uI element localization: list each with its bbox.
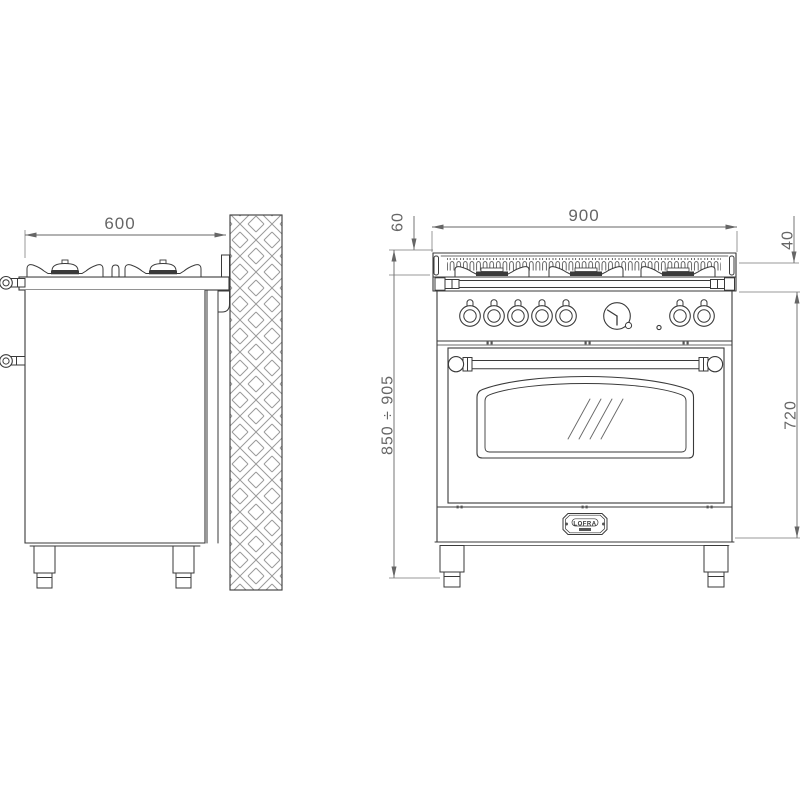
dimension-label: 850 ÷ 905 bbox=[380, 375, 397, 455]
range-installation-diagram: LOFRA 600 bbox=[0, 0, 800, 800]
rail-end-cap-right bbox=[711, 278, 735, 290]
front-view: LOFRA bbox=[433, 253, 736, 587]
rail-end-cap-left bbox=[435, 278, 459, 290]
side-worktop bbox=[19, 277, 229, 290]
control-knob bbox=[508, 300, 529, 327]
towel-rail bbox=[433, 277, 736, 291]
side-body bbox=[25, 290, 205, 543]
dimension-worktop-edge: 40 bbox=[739, 216, 799, 263]
side-view bbox=[0, 215, 282, 590]
control-knob bbox=[694, 300, 715, 327]
control-knob bbox=[670, 300, 691, 327]
handle-ball bbox=[448, 357, 463, 372]
dimension-front-width: 900 bbox=[432, 206, 737, 252]
control-knob bbox=[460, 300, 481, 327]
technical-drawing: LOFRA 600 bbox=[0, 0, 800, 800]
handle-ball bbox=[707, 357, 722, 372]
side-rail-end bbox=[730, 256, 735, 275]
front-leg-right bbox=[704, 546, 728, 588]
brand-badge: LOFRA bbox=[563, 514, 607, 535]
control-panel bbox=[437, 300, 732, 345]
dimension-label: 60 bbox=[390, 212, 407, 232]
rear-spacer bbox=[207, 255, 230, 543]
dimension-label: 40 bbox=[780, 230, 797, 250]
indicator-light bbox=[657, 325, 661, 329]
dimension-grate-height: 60 bbox=[389, 212, 433, 250]
oven-handle-end bbox=[0, 355, 25, 368]
drawer-band: LOFRA bbox=[437, 506, 732, 535]
dimension-label: 720 bbox=[783, 400, 800, 430]
front-leg-left bbox=[440, 546, 464, 588]
timer-clock bbox=[604, 303, 632, 330]
dimension-label: 600 bbox=[104, 214, 135, 233]
side-burner-right bbox=[125, 260, 201, 277]
wall-section bbox=[230, 215, 282, 590]
dimension-side-width: 600 bbox=[25, 214, 226, 258]
control-knob bbox=[484, 300, 505, 327]
pan-support-profile bbox=[112, 265, 119, 277]
side-leg-front bbox=[34, 546, 55, 588]
control-knob bbox=[556, 300, 577, 327]
side-rail-end bbox=[434, 256, 439, 275]
brand-text: LOFRA bbox=[573, 522, 596, 528]
towel-rail-end bbox=[0, 277, 25, 290]
control-knob bbox=[532, 300, 553, 327]
dimension-overall-height: 850 ÷ 905 bbox=[380, 250, 440, 578]
dimension-label: 900 bbox=[568, 206, 599, 225]
hinge-marks bbox=[487, 342, 689, 345]
dimension-body-height: 720 bbox=[735, 292, 800, 538]
side-burner-left bbox=[27, 260, 103, 277]
oven-door bbox=[448, 348, 724, 503]
side-leg-rear bbox=[173, 546, 194, 588]
